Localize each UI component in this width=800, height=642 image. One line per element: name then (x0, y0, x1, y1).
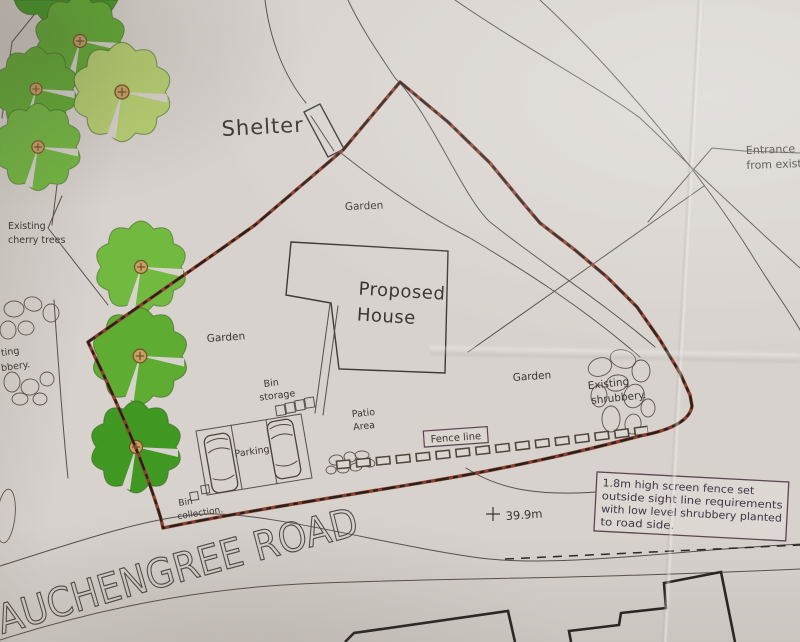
site-plan-photo: Shelter Garden Garden Garden Existing ch… (0, 0, 800, 642)
svg-text:bbery.: bbery. (0, 359, 30, 374)
bin-storage-label: Bin storage (257, 375, 296, 403)
fence-line-label: Fence line (423, 427, 488, 447)
svg-text:from exist: from exist (746, 157, 800, 172)
svg-text:shrubbery.: shrubbery. (591, 389, 647, 407)
entrance-label: Entrance from exist (746, 142, 800, 172)
svg-text:Area: Area (353, 420, 376, 433)
patio-label: Patio Area (351, 407, 377, 433)
car-2 (266, 418, 302, 480)
svg-text:Existing: Existing (8, 221, 46, 232)
svg-text:cherry trees: cherry trees (8, 235, 65, 246)
existing-buildings (345, 572, 735, 642)
svg-text:House: House (356, 304, 416, 329)
svg-text:Bin: Bin (263, 377, 279, 390)
svg-text:Proposed: Proposed (358, 278, 446, 304)
proposed-house-footprint (286, 242, 448, 415)
svg-text:39.9m: 39.9m (505, 506, 543, 523)
svg-text:Entrance: Entrance (746, 142, 796, 157)
tree (0, 103, 80, 190)
tree (94, 308, 187, 405)
tree (97, 221, 186, 313)
svg-text:storage: storage (259, 388, 296, 403)
proposed-house-label: Proposed House (356, 278, 446, 330)
spot-level: 39.9m (486, 506, 543, 523)
svg-text:Existing: Existing (587, 376, 630, 392)
svg-text:ting: ting (0, 346, 20, 359)
shelter-structure (304, 104, 344, 157)
existing-cherry-trees (0, 0, 186, 493)
left-shrubbery-label: ting bbery. (0, 344, 31, 374)
parking-label: Parking (234, 444, 270, 460)
garden-label-left: Garden (206, 330, 245, 345)
garden-label-right: Garden (512, 369, 551, 384)
note-box: 1.8m high screen fence set outside sight… (594, 472, 789, 541)
garden-label-top: Garden (345, 200, 384, 213)
site-plan-drawing: Shelter Garden Garden Garden Existing ch… (0, 0, 800, 642)
tree (74, 42, 170, 141)
svg-text:Patio: Patio (351, 407, 376, 420)
svg-text:Bin: Bin (178, 497, 194, 509)
cherry-trees-label: Existing cherry trees (8, 221, 65, 246)
shelter-label: Shelter (221, 113, 304, 141)
left-shrubbery (0, 295, 59, 544)
